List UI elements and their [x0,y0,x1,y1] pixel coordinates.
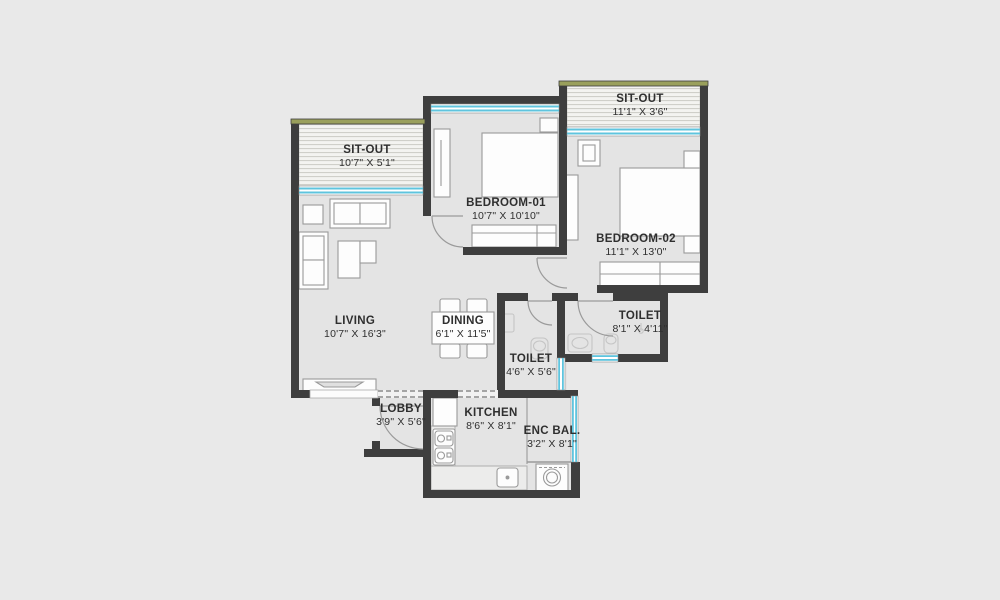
room-dims: 11'1" X 3'6" [612,106,667,119]
room-dims: 4'6" X 5'6" [506,366,556,379]
room-label-bedroom-01: BEDROOM-01 10'7" X 10'10" [466,197,546,223]
room-name: LIVING [335,315,375,328]
dining-chair [467,299,487,313]
room-label-lobby: LOBBY 3'9" X 5'6" [376,403,426,429]
room-name: SIT-OUT [616,93,663,106]
l-seat [338,241,360,278]
room-name: BEDROOM-01 [466,197,546,210]
room-dims: 3'2" X 8'1" [527,438,577,451]
stove [433,429,455,465]
floor-plan: SIT-OUT 10'7" X 5'1" SIT-OUT 11'1" X 3'6… [0,0,1000,600]
room-label-sit-out-left: SIT-OUT 10'7" X 5'1" [339,144,395,170]
dining-chair [467,344,487,358]
room-dims: 3'9" X 5'6" [376,416,426,429]
room-name: DINING [442,315,484,328]
room-label-toilet-mid: TOILET 4'6" X 5'6" [506,353,556,379]
room-dims: 8'1" X 4'11" [612,323,667,336]
room-label-enc-bal: ENC BAL. 3'2" X 8'1" [524,425,581,451]
room-name: LOBBY [380,403,422,416]
room-label-sit-out-right: SIT-OUT 11'1" X 3'6" [612,93,667,119]
room-label-kitchen: KITCHEN 8'6" X 8'1" [464,407,517,433]
bed [620,168,700,236]
side-table [303,205,323,224]
wardrobe [434,129,450,197]
bedside-table [684,151,700,168]
bedside-table [684,236,700,253]
room-dims: 11'1" X 13'0" [605,246,666,259]
fridge [433,398,457,426]
room-name: TOILET [619,310,661,323]
room-label-dining: DINING 6'1" X 11'5" [435,315,490,341]
room-name: KITCHEN [464,407,517,420]
room-dims: 10'7" X 5'1" [339,157,395,170]
room-name: SIT-OUT [343,144,390,157]
room-dims: 8'6" X 8'1" [466,420,516,433]
room-label-toilet-right: TOILET 8'1" X 4'11" [612,310,667,336]
dining-chair [440,344,460,358]
dresser [472,225,556,247]
dining-chair [440,299,460,313]
room-dims: 10'7" X 16'3" [324,328,386,341]
room-label-bedroom-02: BEDROOM-02 11'1" X 13'0" [596,233,676,259]
room-label-living: LIVING 10'7" X 16'3" [324,315,386,341]
room-name: BEDROOM-02 [596,233,676,246]
bedside-table [540,118,558,132]
room-dims: 10'7" X 10'10" [472,210,540,223]
room-name: ENC BAL. [524,425,581,438]
bed [482,133,558,197]
room-dims: 6'1" X 11'5" [435,328,490,341]
tv [316,382,363,387]
floor-plan-drawing [0,0,1000,600]
room-name: TOILET [510,353,552,366]
